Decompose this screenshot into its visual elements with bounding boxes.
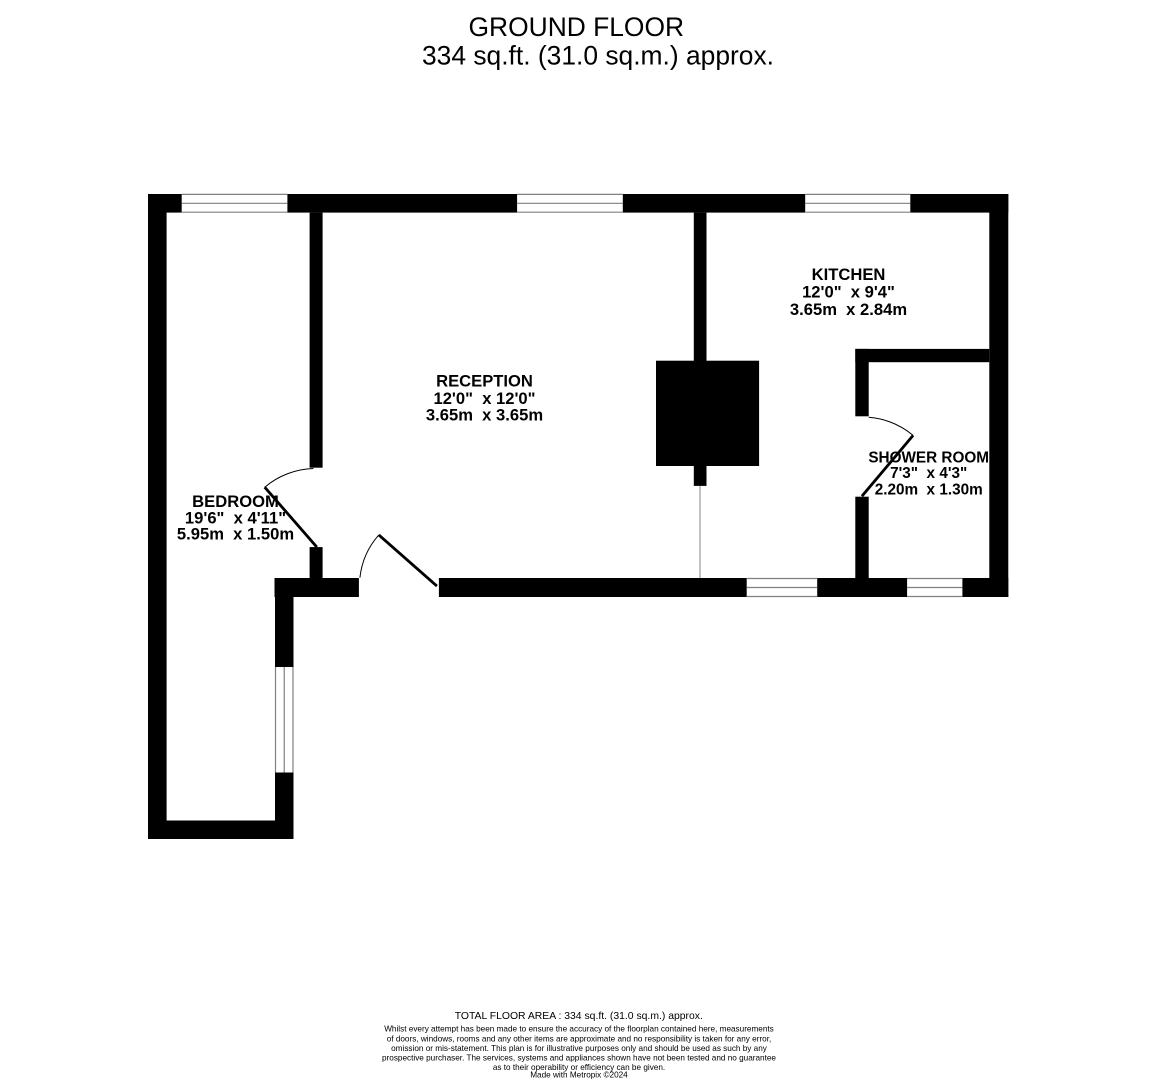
svg-text:5.95m x 1.50m: 5.95m x 1.50m bbox=[177, 525, 294, 544]
svg-text:12'0" x 9'4": 12'0" x 9'4" bbox=[802, 283, 895, 302]
svg-text:KITCHEN: KITCHEN bbox=[812, 265, 886, 284]
svg-text:334 sq.ft. (31.0 sq.m.) approx: 334 sq.ft. (31.0 sq.m.) approx. bbox=[422, 40, 774, 70]
svg-text:3.65m x 3.65m: 3.65m x 3.65m bbox=[426, 405, 543, 424]
svg-text:Made with Metropix ©2024: Made with Metropix ©2024 bbox=[530, 1070, 628, 1079]
svg-text:omission or mis-statement. Thi: omission or mis-statement. This plan is … bbox=[391, 1044, 768, 1053]
svg-text:Whilst every attempt has been: Whilst every attempt has been made to en… bbox=[384, 1025, 774, 1034]
svg-text:7'3" x 4'3": 7'3" x 4'3" bbox=[890, 465, 967, 482]
svg-text:TOTAL FLOOR AREA : 334 sq.ft.: TOTAL FLOOR AREA : 334 sq.ft. (31.0 sq.m… bbox=[455, 1011, 703, 1022]
svg-text:2.20m x 1.30m: 2.20m x 1.30m bbox=[875, 482, 983, 499]
svg-text:RECEPTION: RECEPTION bbox=[436, 371, 533, 390]
svg-text:GROUND FLOOR: GROUND FLOOR bbox=[469, 12, 685, 42]
svg-text:3.65m x 2.84m: 3.65m x 2.84m bbox=[790, 300, 907, 319]
svg-text:of doors, windows, rooms and a: of doors, windows, rooms and any other i… bbox=[387, 1034, 772, 1043]
svg-text:prospective purchaser. The ser: prospective purchaser. The services, sys… bbox=[382, 1054, 776, 1063]
